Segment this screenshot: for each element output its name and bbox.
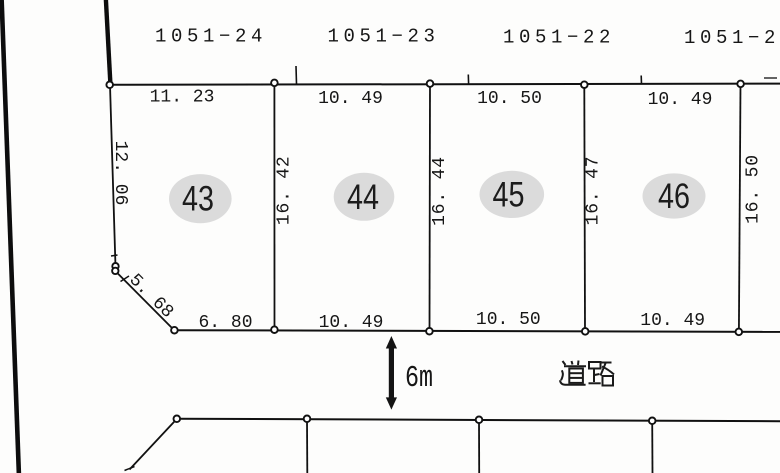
svg-text:10. 50: 10. 50 — [477, 89, 542, 109]
svg-text:43: 43 — [182, 180, 214, 219]
svg-text:16. 42: 16. 42 — [275, 155, 295, 225]
svg-text:10. 49: 10. 49 — [319, 313, 384, 333]
svg-text:45: 45 — [493, 176, 525, 215]
svg-text:46: 46 — [658, 177, 690, 216]
svg-text:1051−23: 1051−23 — [328, 25, 440, 47]
svg-text:10. 49: 10. 49 — [648, 90, 713, 110]
svg-text:10. 49: 10. 49 — [318, 89, 383, 109]
svg-text:10. 49: 10. 49 — [640, 311, 705, 331]
svg-text:16. 47: 16. 47 — [583, 156, 603, 226]
svg-text:1051−24: 1051−24 — [155, 25, 267, 47]
svg-text:1051−22: 1051−22 — [503, 26, 615, 48]
svg-text:12. 06: 12. 06 — [110, 141, 130, 206]
svg-text:11. 23: 11. 23 — [150, 88, 215, 108]
svg-text:16. 44: 16. 44 — [430, 156, 450, 226]
svg-text:5. 68: 5. 68 — [125, 270, 177, 322]
svg-text:6. 80: 6. 80 — [198, 313, 252, 333]
svg-text:1051−2: 1051−2 — [684, 27, 780, 49]
svg-text:10. 50: 10. 50 — [476, 310, 541, 330]
svg-text:6m: 6m — [405, 361, 433, 396]
svg-text:44: 44 — [347, 178, 379, 217]
svg-text:16. 50: 16. 50 — [744, 154, 764, 224]
